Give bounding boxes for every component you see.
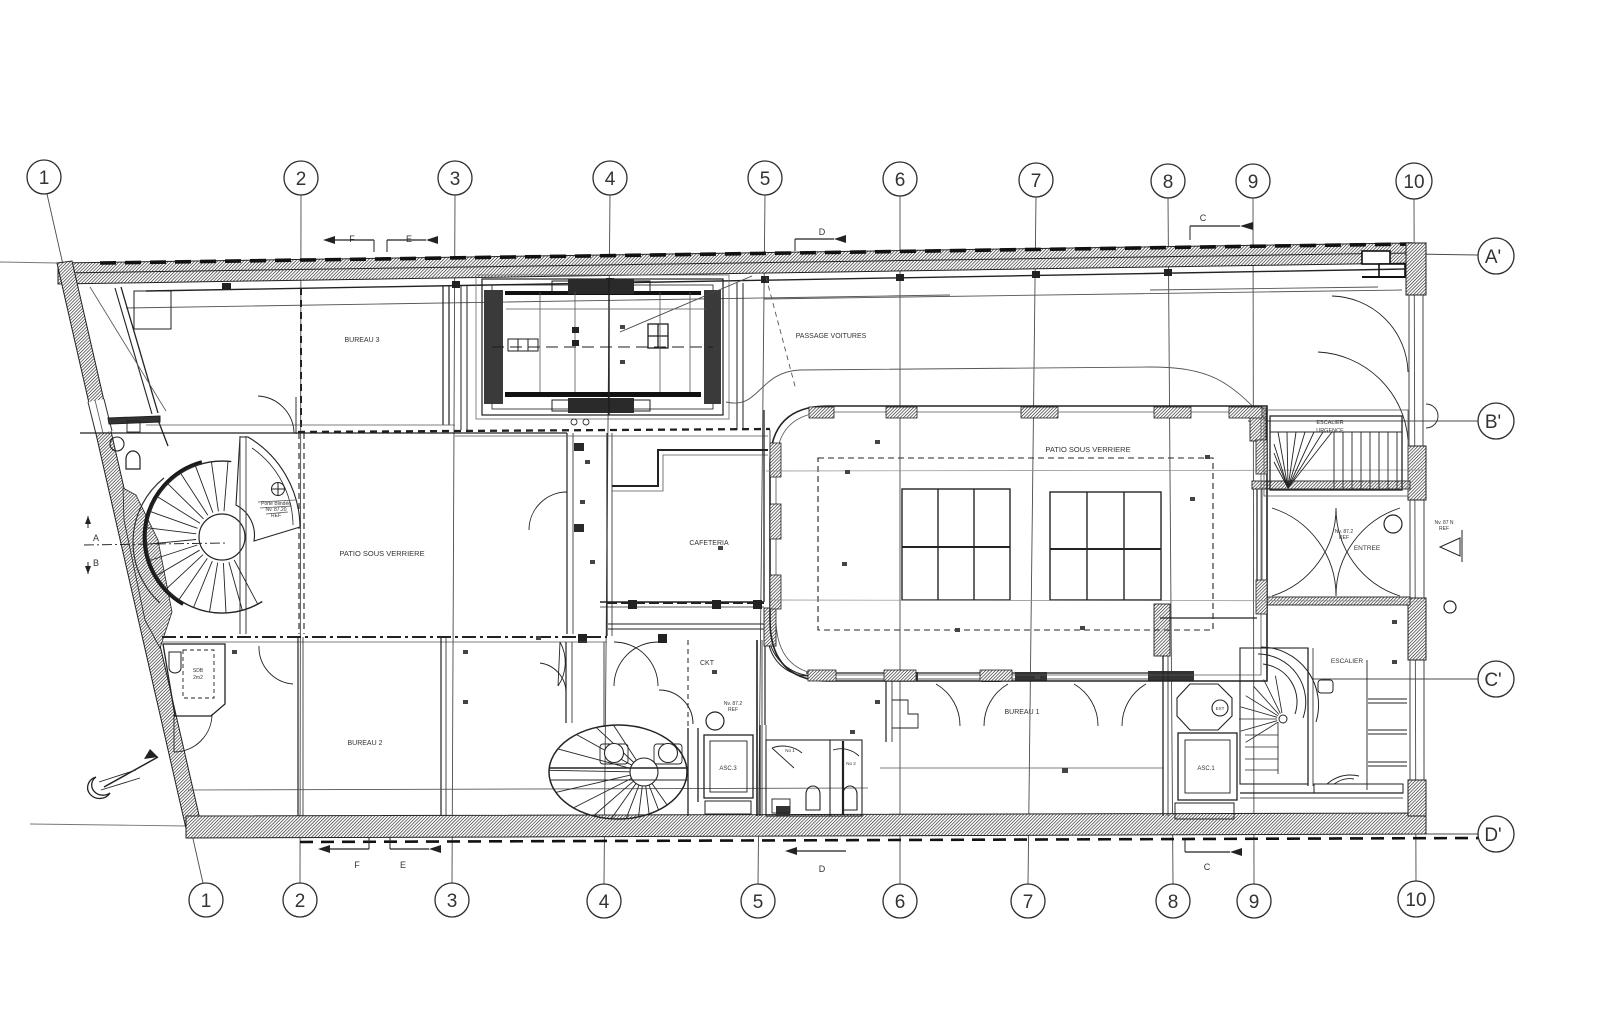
svg-text:2: 2 [295, 891, 306, 912]
svg-text:B': B' [1485, 412, 1501, 433]
svg-text:A: A [93, 533, 99, 543]
svg-text:BUREAU 3: BUREAU 3 [344, 337, 379, 344]
svg-text:5: 5 [753, 892, 764, 913]
svg-text:10: 10 [1405, 890, 1426, 911]
svg-text:E: E [400, 860, 406, 870]
svg-text:8: 8 [1163, 172, 1174, 193]
svg-text:ESCALIER: ESCALIER [1331, 658, 1363, 665]
svg-text:1: 1 [39, 168, 50, 189]
svg-text:3: 3 [450, 169, 461, 190]
svg-text:D': D' [1484, 825, 1501, 846]
svg-text:5: 5 [760, 169, 771, 190]
svg-text:F: F [349, 234, 355, 244]
svg-text:EXT: EXT [1216, 706, 1225, 711]
svg-text:PASSAGE VOITURES: PASSAGE VOITURES [796, 333, 867, 340]
svg-text:PATIO SOUS VERRIERE: PATIO SOUS VERRIERE [1045, 445, 1130, 454]
svg-text:SDB: SDB [193, 668, 204, 674]
svg-text:BUREAU 2: BUREAU 2 [347, 740, 382, 747]
svg-text:ASC.3: ASC.3 [719, 766, 737, 772]
svg-text:3: 3 [447, 891, 458, 912]
svg-text:10: 10 [1403, 172, 1424, 193]
svg-text:PATIO SOUS VERRIERE: PATIO SOUS VERRIERE [339, 549, 424, 558]
svg-text:BUREAU 1: BUREAU 1 [1004, 709, 1039, 716]
svg-text:2: 2 [296, 169, 307, 190]
svg-text:ASC.1: ASC.1 [1197, 766, 1215, 772]
svg-text:C: C [1204, 862, 1211, 872]
svg-text:8: 8 [1168, 892, 1179, 913]
svg-text:URGENCE: URGENCE [1316, 428, 1344, 434]
svg-text:7: 7 [1023, 892, 1034, 913]
svg-text:4: 4 [605, 169, 616, 190]
svg-text:REF: REF [1339, 535, 1349, 541]
svg-text:C': C' [1484, 670, 1501, 691]
svg-text:1: 1 [201, 891, 212, 912]
svg-text:No 1: No 1 [785, 748, 795, 753]
svg-text:4: 4 [599, 892, 610, 913]
svg-text:6: 6 [895, 170, 906, 191]
svg-text:D: D [819, 864, 826, 874]
svg-text:B: B [93, 558, 99, 568]
svg-text:6: 6 [895, 892, 906, 913]
svg-text:D: D [819, 227, 826, 237]
svg-text:2m2: 2m2 [193, 675, 203, 681]
svg-text:A': A' [1485, 247, 1501, 268]
svg-text:REF: REF [728, 707, 738, 713]
svg-text:No 2: No 2 [846, 761, 856, 766]
svg-text:C: C [1200, 213, 1207, 223]
svg-text:9: 9 [1248, 172, 1259, 193]
svg-text:ENTREE: ENTREE [1354, 545, 1381, 552]
svg-text:9: 9 [1249, 892, 1260, 913]
svg-text:ESCALIER: ESCALIER [1316, 420, 1343, 426]
svg-text:REF: REF [1439, 526, 1449, 532]
svg-text:CKT: CKT [700, 660, 715, 667]
svg-text:F: F [354, 860, 360, 870]
svg-text:E: E [406, 234, 412, 244]
svg-text:7: 7 [1031, 171, 1042, 192]
svg-text:REF: REF [271, 513, 281, 519]
svg-text:CAFETERIA: CAFETERIA [689, 540, 729, 547]
